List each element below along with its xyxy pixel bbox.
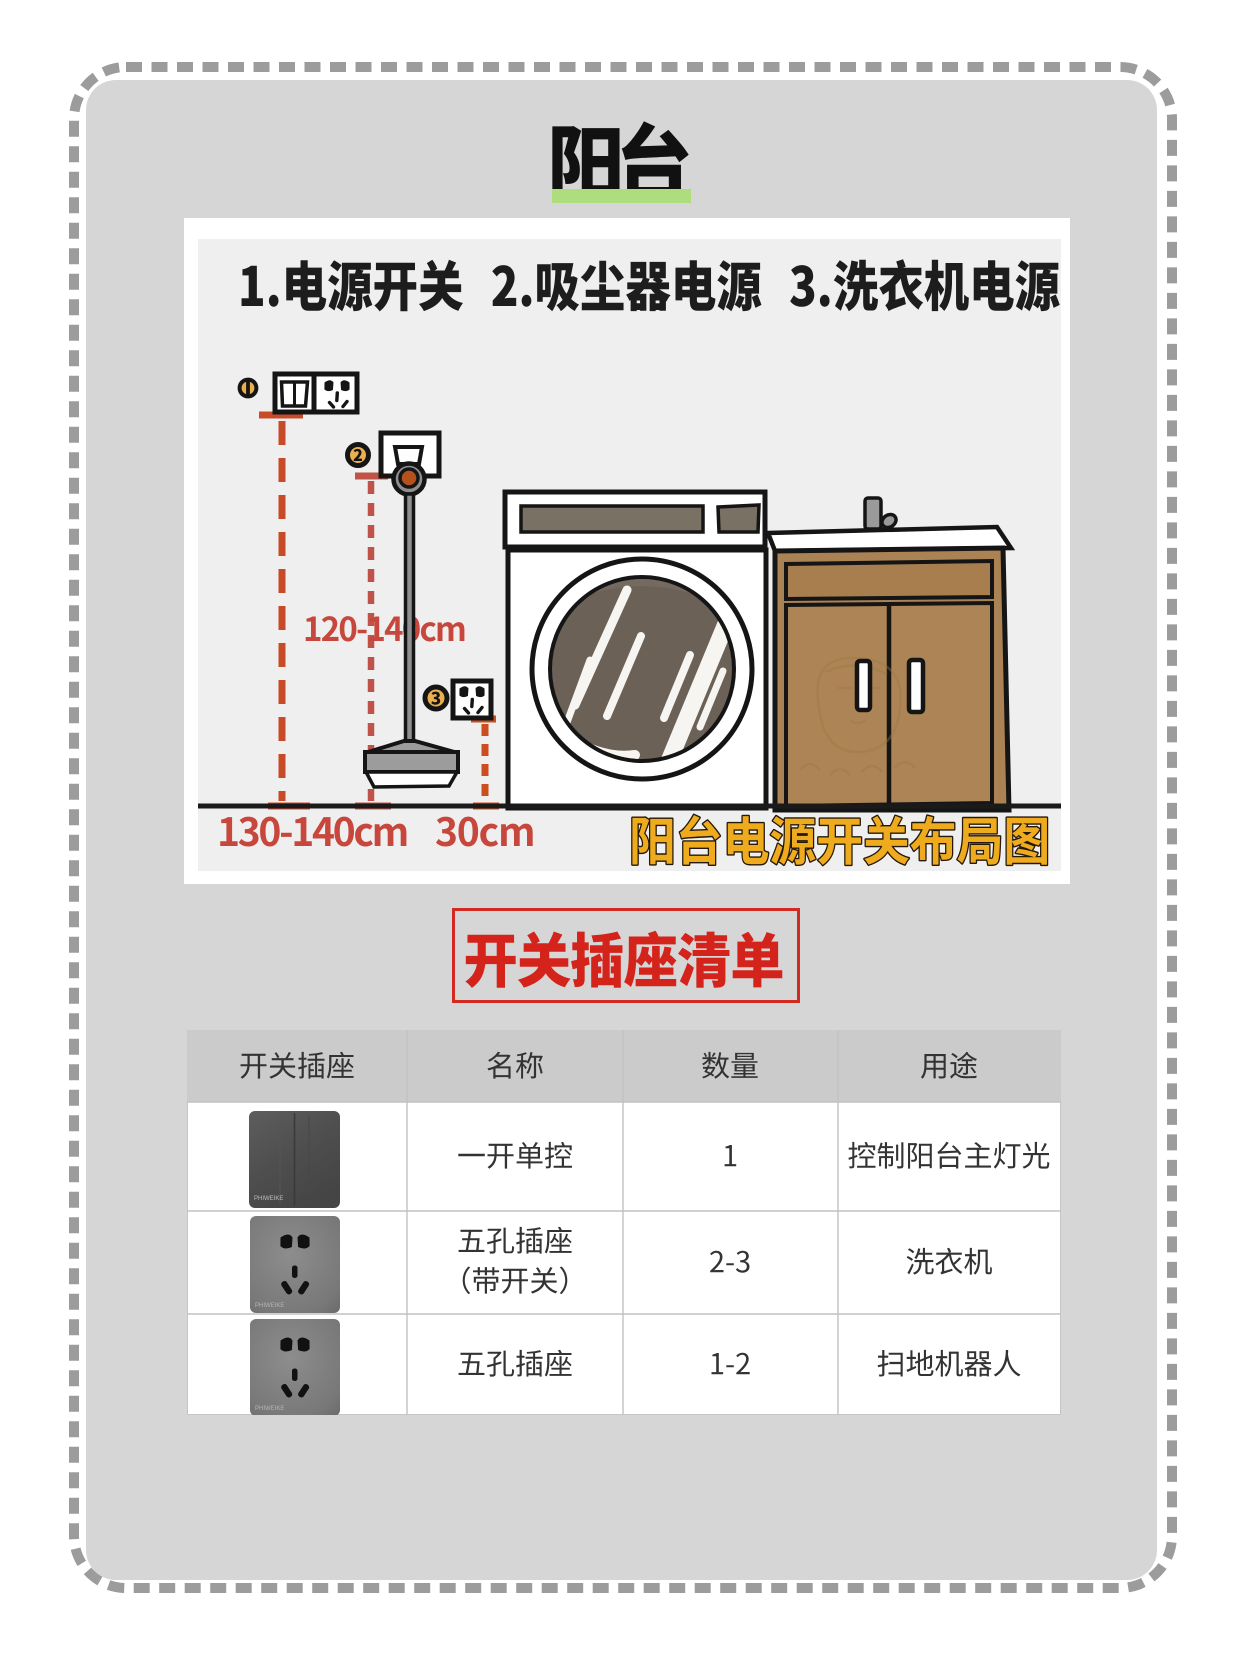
svg-text:PHIWEIKE: PHIWEIKE xyxy=(255,1303,284,1309)
svg-text:PHIWEIKE: PHIWEIKE xyxy=(255,1406,284,1412)
svg-text:PHIWEIKE: PHIWEIKE xyxy=(254,1196,283,1202)
